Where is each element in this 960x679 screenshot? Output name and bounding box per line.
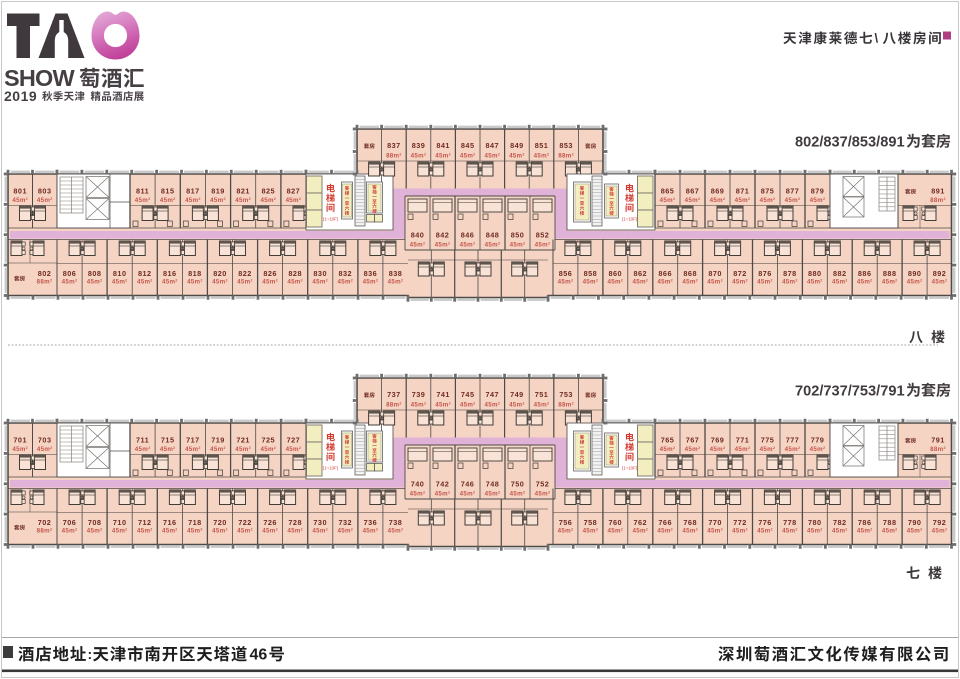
svg-text:45m2: 45m2 [137, 528, 153, 535]
svg-text:725: 725 [262, 436, 276, 445]
svg-text:712: 712 [138, 518, 152, 527]
svg-text:822: 822 [238, 269, 252, 278]
svg-text:776: 776 [758, 518, 772, 527]
svg-text:890: 890 [908, 269, 922, 278]
svg-text:872: 872 [733, 269, 747, 278]
svg-text:801: 801 [13, 187, 27, 196]
svg-text:739: 739 [412, 390, 426, 399]
svg-text:892: 892 [933, 269, 947, 278]
svg-text:46: 46 [250, 647, 268, 664]
svg-text:45m2: 45m2 [162, 279, 178, 286]
svg-text:719: 719 [211, 436, 225, 445]
svg-text:708: 708 [88, 518, 102, 527]
svg-text:867: 867 [686, 187, 700, 196]
svg-text:702: 702 [38, 518, 52, 527]
svg-text:845: 845 [461, 141, 475, 150]
svg-text:720: 720 [213, 518, 227, 527]
svg-text:737: 737 [387, 390, 401, 399]
svg-text:852: 852 [536, 231, 550, 240]
svg-text:45m2: 45m2 [162, 528, 178, 535]
svg-text:816: 816 [163, 269, 177, 278]
svg-text:803: 803 [38, 187, 52, 196]
svg-text:891: 891 [931, 187, 945, 196]
svg-text:762: 762 [634, 518, 648, 527]
svg-text:868: 868 [683, 269, 697, 278]
svg-text:780: 780 [808, 518, 822, 527]
svg-text:45m2: 45m2 [484, 402, 500, 409]
svg-text:716: 716 [163, 518, 177, 527]
svg-text:856: 856 [559, 269, 573, 278]
svg-text:869: 869 [711, 187, 725, 196]
svg-text:728: 728 [288, 518, 302, 527]
svg-text:842: 842 [436, 231, 450, 240]
svg-text:879: 879 [811, 187, 825, 196]
svg-text:849: 849 [510, 141, 524, 150]
svg-text:45m2: 45m2 [337, 528, 353, 535]
svg-text:812: 812 [138, 269, 152, 278]
svg-text:765: 765 [661, 436, 675, 445]
svg-text:715: 715 [161, 436, 175, 445]
svg-text:45m2: 45m2 [607, 528, 623, 535]
svg-text:736: 736 [364, 518, 378, 527]
svg-text:45m2: 45m2 [607, 279, 623, 286]
svg-text:741: 741 [436, 390, 450, 399]
svg-text:847: 847 [486, 141, 500, 150]
svg-text:748: 748 [486, 480, 500, 489]
svg-text:740: 740 [411, 480, 425, 489]
svg-text:2019: 2019 [4, 88, 37, 104]
svg-text:726: 726 [263, 518, 277, 527]
svg-text:828: 828 [288, 269, 302, 278]
svg-text:772: 772 [733, 518, 747, 527]
svg-text:(1~10F): (1~10F) [622, 466, 638, 471]
svg-text:851: 851 [535, 141, 549, 150]
svg-text:767: 767 [686, 436, 700, 445]
svg-text:730: 730 [313, 518, 327, 527]
svg-text:775: 775 [761, 436, 775, 445]
svg-text:860: 860 [609, 269, 623, 278]
svg-text:760: 760 [609, 518, 623, 527]
svg-text:751: 751 [535, 390, 549, 399]
svg-text:779: 779 [811, 436, 825, 445]
svg-text:865: 865 [661, 187, 675, 196]
svg-text:710: 710 [113, 518, 127, 527]
svg-text:839: 839 [412, 141, 426, 150]
svg-text:866: 866 [658, 269, 672, 278]
svg-text:815: 815 [161, 187, 175, 196]
svg-text:870: 870 [708, 269, 722, 278]
svg-text:820: 820 [213, 269, 227, 278]
svg-text:\: \ [875, 31, 879, 46]
svg-text:830: 830 [313, 269, 327, 278]
svg-text:821: 821 [236, 187, 250, 196]
svg-text:875: 875 [761, 187, 775, 196]
svg-text:846: 846 [461, 231, 475, 240]
svg-text:782: 782 [833, 518, 847, 527]
svg-text:838: 838 [389, 269, 403, 278]
svg-text:878: 878 [783, 269, 797, 278]
svg-text:45m2: 45m2 [807, 528, 823, 535]
svg-text:753: 753 [559, 390, 573, 399]
svg-text:810: 810 [113, 269, 127, 278]
svg-text:45m2: 45m2 [807, 279, 823, 286]
svg-text:791: 791 [931, 436, 945, 445]
svg-text:703: 703 [38, 436, 52, 445]
svg-text:886: 886 [858, 269, 872, 278]
svg-text:45m2: 45m2 [832, 279, 848, 286]
svg-text:817: 817 [186, 187, 200, 196]
svg-text:711: 711 [136, 436, 149, 445]
svg-text:747: 747 [486, 390, 500, 399]
svg-text:769: 769 [711, 436, 725, 445]
svg-text::: : [88, 646, 93, 662]
svg-text:(1~10F): (1~10F) [323, 466, 339, 471]
svg-text:718: 718 [188, 518, 202, 527]
svg-text:742: 742 [436, 480, 450, 489]
svg-text:848: 848 [486, 231, 500, 240]
svg-text:837: 837 [387, 141, 401, 150]
svg-text:722: 722 [238, 518, 252, 527]
svg-text:738: 738 [389, 518, 403, 527]
svg-text:826: 826 [263, 269, 277, 278]
svg-text:766: 766 [658, 518, 672, 527]
svg-text:(1~10F): (1~10F) [323, 217, 339, 222]
svg-text:45m2: 45m2 [632, 528, 648, 535]
svg-text:841: 841 [436, 141, 450, 150]
svg-text:45m2: 45m2 [260, 197, 276, 204]
svg-text:850: 850 [511, 231, 525, 240]
svg-text:877: 877 [786, 187, 800, 196]
svg-text:792: 792 [933, 518, 947, 527]
svg-text:840: 840 [411, 231, 425, 240]
svg-text:808: 808 [88, 269, 102, 278]
svg-text:749: 749 [510, 390, 524, 399]
svg-text:752: 752 [536, 480, 550, 489]
svg-text:758: 758 [584, 518, 598, 527]
svg-text:768: 768 [683, 518, 697, 527]
svg-text:45m2: 45m2 [832, 528, 848, 535]
svg-text:727: 727 [287, 436, 301, 445]
svg-text:876: 876 [758, 269, 772, 278]
svg-text:45m2: 45m2 [337, 279, 353, 286]
svg-text:786: 786 [858, 518, 872, 527]
svg-text:862: 862 [634, 269, 648, 278]
svg-text:806: 806 [63, 269, 77, 278]
svg-text:721: 721 [236, 436, 250, 445]
svg-text:788: 788 [883, 518, 897, 527]
svg-text:827: 827 [287, 187, 301, 196]
svg-text:45m2: 45m2 [260, 446, 276, 453]
svg-text:770: 770 [708, 518, 722, 527]
svg-text:771: 771 [736, 436, 750, 445]
svg-text:888: 888 [883, 269, 897, 278]
svg-text:706: 706 [63, 518, 77, 527]
svg-text:746: 746 [461, 480, 475, 489]
svg-text:756: 756 [559, 518, 573, 527]
svg-text:701: 701 [13, 436, 27, 445]
svg-text:880: 880 [808, 269, 822, 278]
svg-text:750: 750 [511, 480, 525, 489]
svg-text:858: 858 [584, 269, 598, 278]
svg-text:853: 853 [559, 141, 573, 150]
svg-text:882: 882 [833, 269, 847, 278]
svg-text:(1~10F): (1~10F) [622, 217, 638, 222]
svg-text:818: 818 [188, 269, 202, 278]
svg-text:811: 811 [136, 187, 149, 196]
svg-text:819: 819 [211, 187, 225, 196]
svg-text:45m2: 45m2 [137, 279, 153, 286]
svg-text:45m2: 45m2 [632, 279, 648, 286]
svg-text:717: 717 [186, 436, 200, 445]
svg-text:702/737/753/791: 702/737/753/791 [795, 384, 905, 400]
svg-text:45m2: 45m2 [484, 153, 500, 160]
svg-text:778: 778 [783, 518, 797, 527]
svg-text:777: 777 [786, 436, 800, 445]
svg-text:802: 802 [38, 269, 52, 278]
svg-text:790: 790 [908, 518, 922, 527]
svg-text:732: 732 [339, 518, 353, 527]
svg-text:836: 836 [364, 269, 378, 278]
svg-text:802/837/853/891: 802/837/853/891 [795, 135, 905, 151]
svg-text:745: 745 [461, 390, 475, 399]
svg-text:832: 832 [339, 269, 353, 278]
svg-text:871: 871 [736, 187, 750, 196]
svg-text:825: 825 [262, 187, 276, 196]
